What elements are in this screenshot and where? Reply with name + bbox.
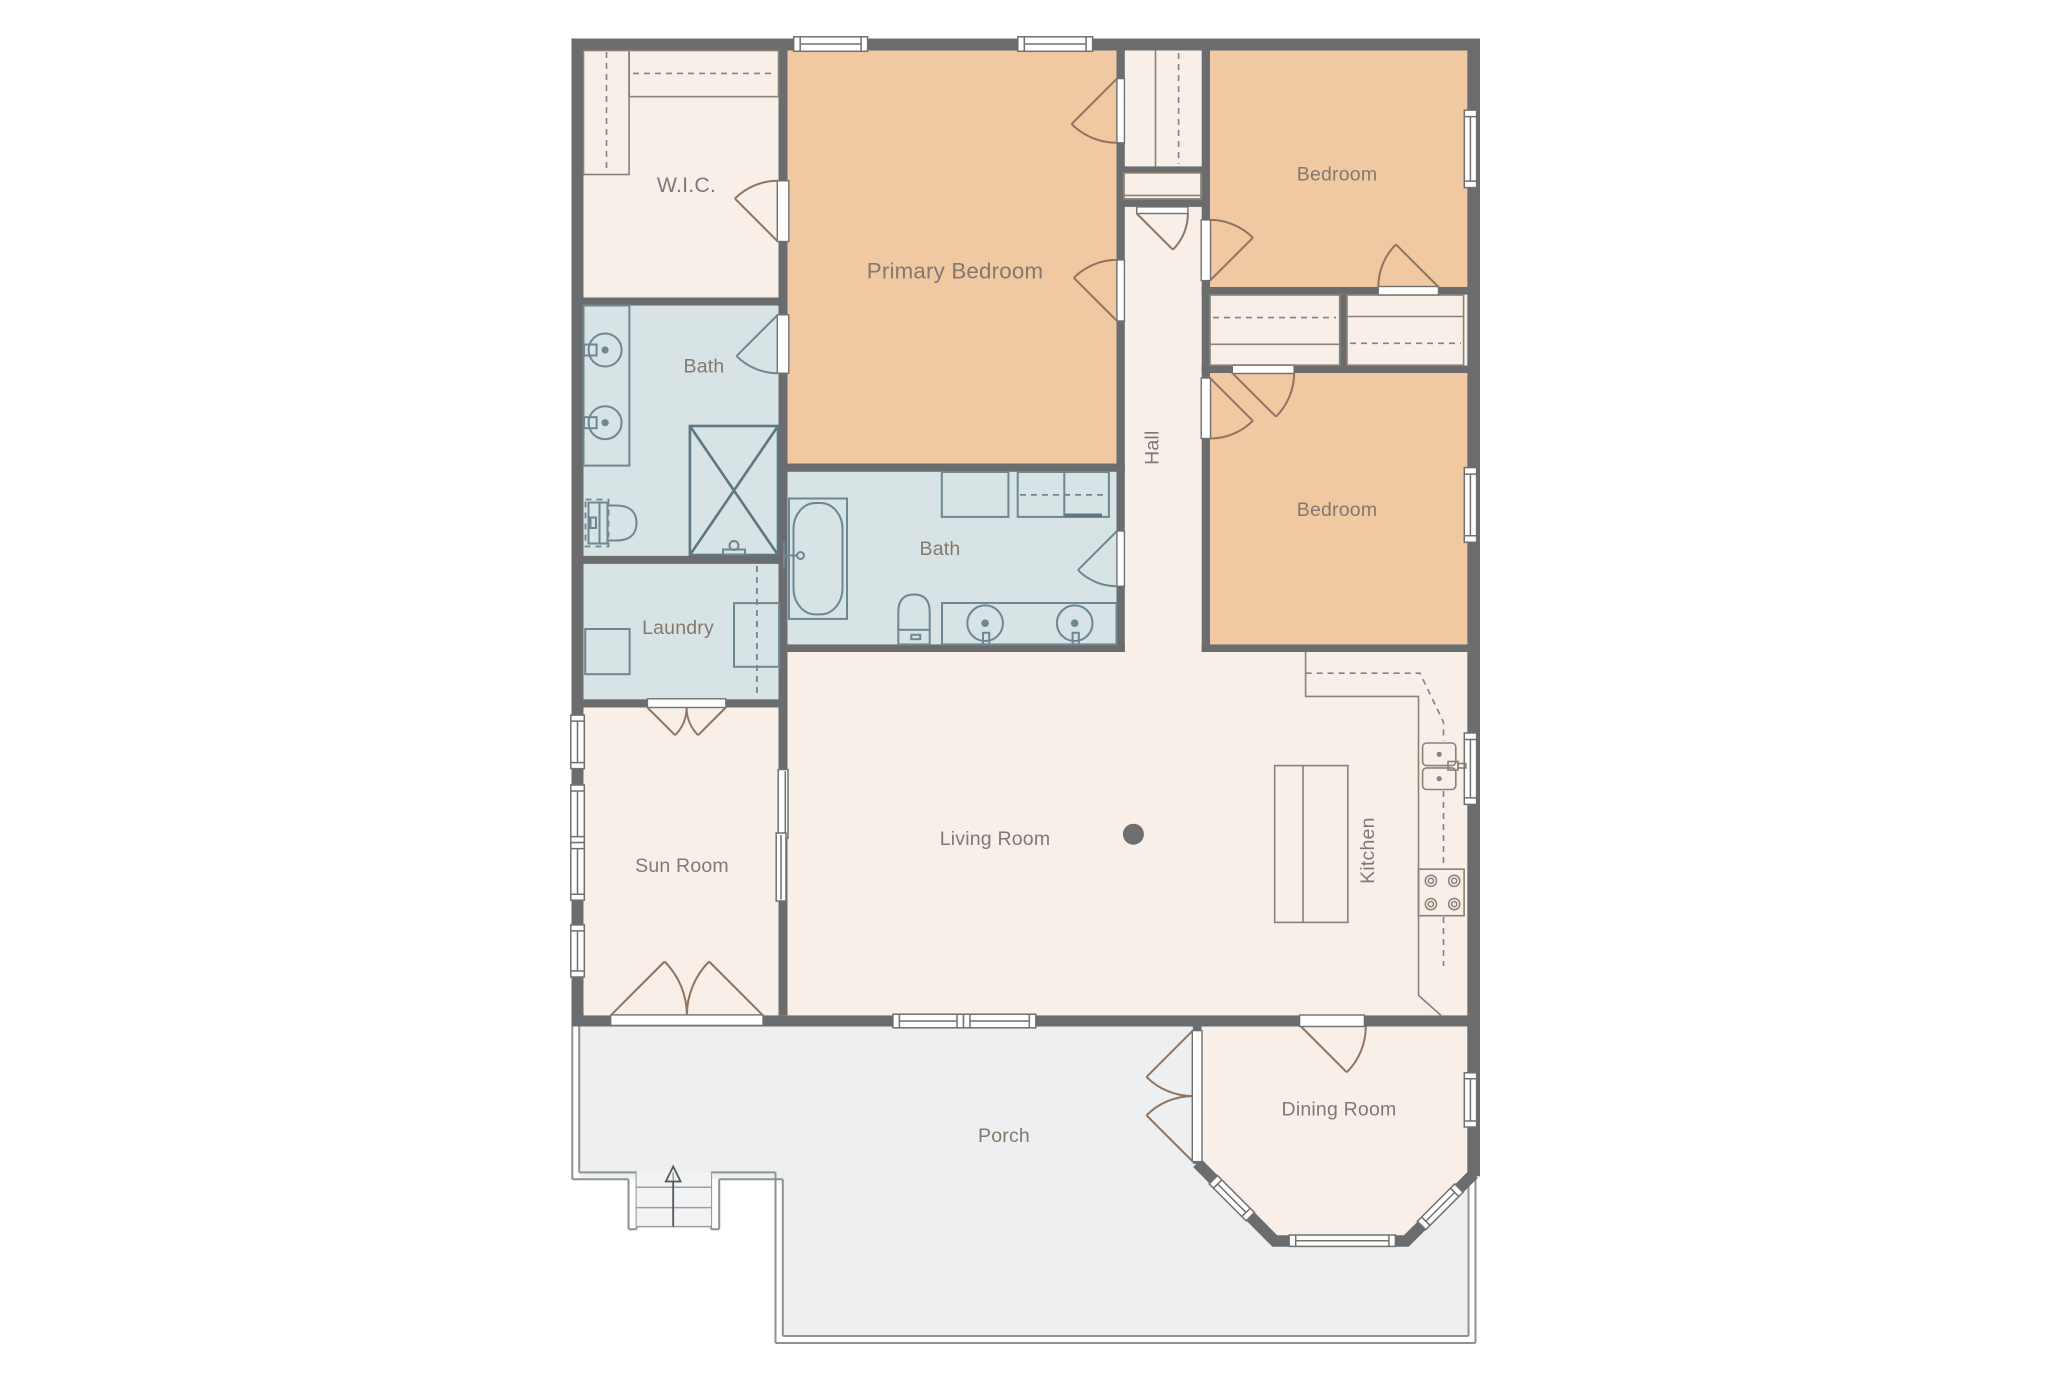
svg-text:Bedroom: Bedroom [1297,499,1378,521]
svg-text:Sun Room: Sun Room [635,855,729,877]
svg-text:Primary Bedroom: Primary Bedroom [867,259,1043,284]
svg-text:Living Room: Living Room [940,828,1051,850]
svg-text:Bath: Bath [684,356,725,378]
svg-text:Bath: Bath [920,538,961,560]
svg-text:Hall: Hall [1142,430,1164,464]
svg-text:Bedroom: Bedroom [1297,164,1378,186]
svg-text:Laundry: Laundry [642,617,714,639]
svg-text:Kitchen: Kitchen [1357,817,1379,883]
svg-text:Dining Room: Dining Room [1282,1099,1397,1121]
svg-text:Porch: Porch [978,1125,1030,1147]
svg-text:W.I.C.: W.I.C. [657,173,716,197]
